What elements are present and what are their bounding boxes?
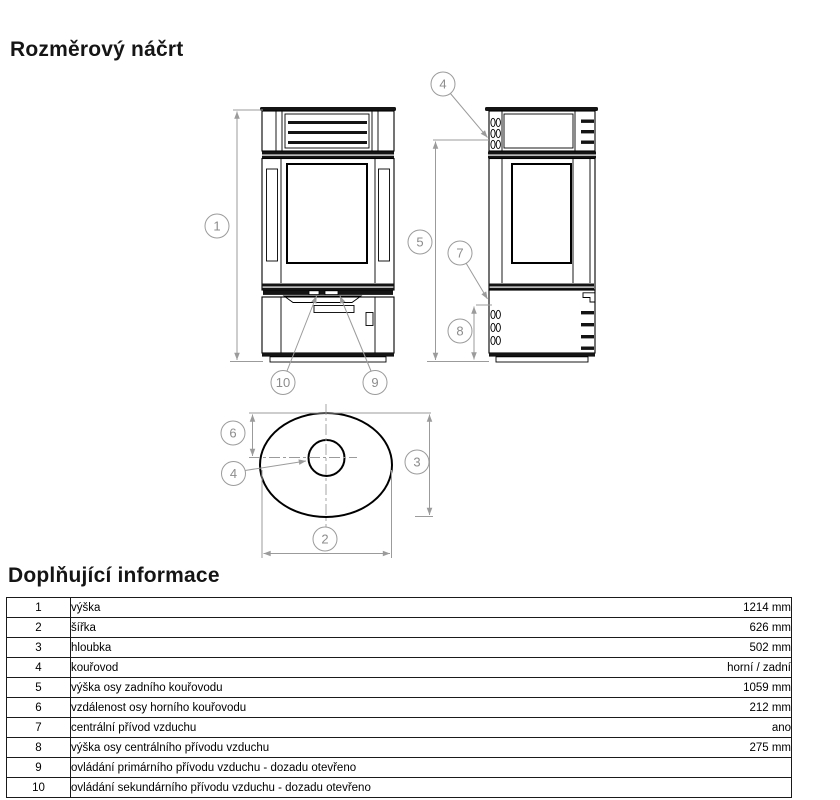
- svg-text:10: 10: [276, 375, 290, 390]
- central-air-holes-bottom: [491, 310, 501, 344]
- side-vent-slats-bottom: [581, 311, 594, 350]
- table-row: 4 kouřovod horní / zadní: [7, 658, 792, 678]
- datasheet-page: Rozměrový náčrt: [0, 0, 840, 800]
- info-table: 1 výška 1214 mm 2 šířka 626 mm 3 hloubka…: [6, 597, 792, 798]
- row-label: centrální přívod vzduchu: [71, 718, 642, 738]
- table-row: 1 výška 1214 mm: [7, 598, 792, 618]
- row-value: 212 mm: [641, 698, 792, 718]
- front-vent-slats: [288, 121, 367, 144]
- svg-text:6: 6: [229, 426, 236, 441]
- flue-outlet-circle: [309, 440, 345, 476]
- row-value: 275 mm: [641, 738, 792, 758]
- front-door-glass: [287, 164, 367, 263]
- callout-4-topview: 4: [222, 462, 246, 486]
- row-value: ano: [641, 718, 792, 738]
- table-row: 9 ovládání primárního přívodu vzduchu - …: [7, 758, 792, 778]
- air-control-levers: [263, 291, 393, 295]
- row-number: 10: [7, 778, 71, 798]
- leader-central-air-7: [466, 263, 488, 299]
- callout-6: 6: [221, 421, 245, 445]
- svg-text:2: 2: [321, 532, 328, 547]
- row-label: ovládání primárního přívodu vzduchu - do…: [71, 758, 642, 778]
- callout-3: 3: [405, 450, 429, 474]
- dim-height-1: [230, 110, 263, 362]
- row-number: 6: [7, 698, 71, 718]
- row-number: 7: [7, 718, 71, 738]
- leader-secondary-air-9: [340, 296, 371, 371]
- callout-1: 1: [205, 214, 229, 238]
- callout-5: 5: [408, 230, 432, 254]
- svg-text:4: 4: [230, 466, 237, 481]
- row-value: 502 mm: [641, 638, 792, 658]
- row-number: 5: [7, 678, 71, 698]
- leader-primary-air-10: [287, 296, 317, 371]
- callout-7: 7: [448, 241, 472, 265]
- row-value: [641, 758, 792, 778]
- table-row: 2 šířka 626 mm: [7, 618, 792, 638]
- side-vent-slats-top: [581, 120, 594, 144]
- rear-flue-holes-top: [491, 118, 501, 148]
- row-value: horní / zadní: [641, 658, 792, 678]
- row-label: kouřovod: [71, 658, 642, 678]
- svg-text:3: 3: [413, 455, 420, 470]
- table-row: 3 hloubka 502 mm: [7, 638, 792, 658]
- row-value: 1059 mm: [641, 678, 792, 698]
- svg-text:9: 9: [371, 375, 378, 390]
- svg-text:5: 5: [416, 235, 423, 250]
- row-number: 8: [7, 738, 71, 758]
- callout-2: 2: [313, 527, 337, 551]
- table-row: 6 vzdálenost osy horního kouřovodu 212 m…: [7, 698, 792, 718]
- svg-text:4: 4: [439, 77, 446, 92]
- callout-9: 9: [363, 371, 387, 395]
- callout-10: 10: [271, 371, 295, 395]
- callout-4-side: 4: [431, 72, 455, 96]
- svg-text:8: 8: [456, 324, 463, 339]
- row-value: [641, 778, 792, 798]
- row-label: ovládání sekundárního přívodu vzduchu - …: [71, 778, 642, 798]
- stove-front-view: [260, 107, 396, 362]
- row-number: 2: [7, 618, 71, 638]
- row-label: vzdálenost osy horního kouřovodu: [71, 698, 642, 718]
- side-glass-panel: [512, 164, 571, 263]
- table-row: 10 ovládání sekundárního přívodu vzduchu…: [7, 778, 792, 798]
- leader-flue-4: [450, 93, 488, 138]
- table-row: 8 výška osy centrálního přívodu vzduchu …: [7, 738, 792, 758]
- row-number: 4: [7, 658, 71, 678]
- row-number: 9: [7, 758, 71, 778]
- row-number: 3: [7, 638, 71, 658]
- row-label: šířka: [71, 618, 642, 638]
- leader-flue-topview-4: [245, 461, 306, 471]
- stove-side-view: [485, 107, 598, 362]
- section-title: Doplňující informace: [8, 564, 220, 588]
- row-number: 1: [7, 598, 71, 618]
- table-row: 5 výška osy zadního kouřovodu 1059 mm: [7, 678, 792, 698]
- dim-top-flue-offset-6: [249, 413, 431, 456]
- row-label: výška osy centrálního přívodu vzduchu: [71, 738, 642, 758]
- svg-text:1: 1: [213, 219, 220, 234]
- row-value: 626 mm: [641, 618, 792, 638]
- row-label: hloubka: [71, 638, 642, 658]
- callout-8: 8: [448, 319, 472, 343]
- table-row: 7 centrální přívod vzduchu ano: [7, 718, 792, 738]
- row-label: výška: [71, 598, 642, 618]
- row-label: výška osy zadního kouřovodu: [71, 678, 642, 698]
- row-value: 1214 mm: [641, 598, 792, 618]
- svg-text:7: 7: [456, 246, 463, 261]
